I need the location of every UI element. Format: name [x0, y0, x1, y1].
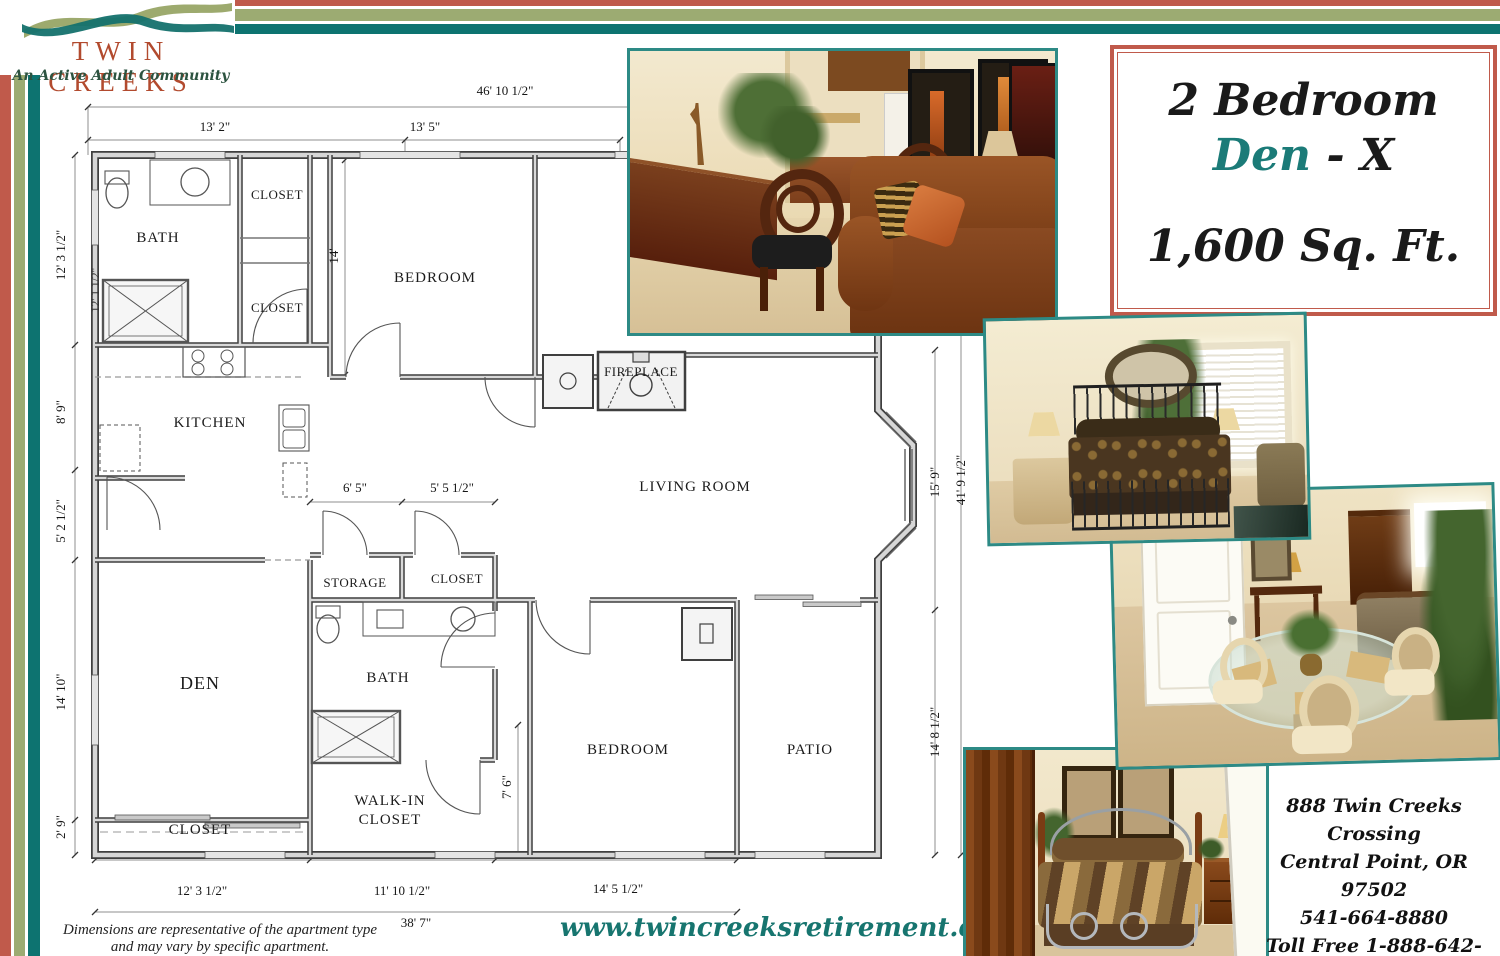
- dim-left-a-inner: 12' 1 1/2": [90, 268, 102, 312]
- dim-right-b: 14' 8 1/2": [927, 707, 942, 757]
- brochure-page: TWIN CREEKS An Active Adult Community: [0, 0, 1500, 956]
- room-label-closet-hall: CLOSET: [431, 571, 483, 586]
- top-stripe-rust: [235, 0, 1500, 6]
- room-label-den: DEN: [180, 673, 220, 693]
- dim-bottom-c: 14' 5 1/2": [593, 881, 643, 896]
- dim-walkin-side: 7' 6": [499, 775, 514, 799]
- dim-bottom-overall: 38' 7": [401, 915, 431, 930]
- dim-left-a: 12' 3 1/2": [55, 230, 68, 280]
- plan-title-line2: Den - X: [1213, 130, 1394, 181]
- plan-title-box: 2 Bedroom Den - X 1,600 Sq. Ft.: [1110, 45, 1497, 316]
- footboard: [1071, 478, 1230, 530]
- bath1-fixtures: [103, 160, 230, 342]
- room-label-kitchen: KITCHEN: [174, 415, 247, 431]
- room-label-closet-mid: CLOSET: [251, 300, 303, 315]
- chair-seat: [1292, 725, 1353, 755]
- room-label-patio: PATIO: [787, 742, 833, 758]
- door-panel: [1155, 536, 1231, 604]
- giraffe-figurine: [690, 103, 704, 165]
- plan-title-den-suffix: - X: [1311, 130, 1394, 181]
- dim-top-overall: 46' 10 1/2": [477, 83, 534, 98]
- dim-left-e: 2' 9": [55, 815, 68, 839]
- chair-legs: [760, 267, 824, 311]
- room-label-walkin-2: CLOSET: [359, 812, 422, 828]
- contact-tollfree: Toll Free 1-888-642-8880: [1248, 932, 1500, 956]
- marble-dresser: [1234, 505, 1312, 543]
- chair-inner-ring: [776, 185, 820, 233]
- contact-address1: 888 Twin Creeks Crossing: [1248, 792, 1500, 848]
- contact-block: 888 Twin Creeks Crossing Central Point, …: [1248, 792, 1500, 956]
- scroll-curl: [1070, 912, 1098, 940]
- dim-top-b: 13' 5": [410, 119, 440, 134]
- dim-top-a: 13' 2": [200, 119, 230, 134]
- cabinets: [828, 51, 910, 91]
- scroll-curl: [1120, 912, 1148, 940]
- room-label-bedroom1: BEDROOM: [394, 270, 476, 286]
- dim-mid-a: 6' 5": [343, 480, 367, 495]
- nightstand-plant: [1196, 836, 1226, 862]
- left-stripe-teal: [28, 75, 40, 956]
- room-label-walkin-1: WALK-IN: [354, 793, 425, 809]
- contact-address2: Central Point, OR 97502: [1248, 848, 1500, 904]
- photo-master-bedroom: [983, 312, 1312, 547]
- dim-mid-b: 5' 5 1/2": [430, 480, 474, 495]
- chair-seat: [1384, 669, 1435, 696]
- accent-chair: [1256, 443, 1305, 508]
- photo-living-room: [627, 48, 1058, 336]
- plan-title-sqft: 1,600 Sq. Ft.: [1147, 221, 1460, 272]
- dim-left-b: 8' 9": [55, 400, 68, 424]
- fireplace: [598, 352, 685, 410]
- room-label-living: LIVING ROOM: [639, 479, 750, 495]
- room-label-fireplace: FIREPLACE: [604, 364, 678, 379]
- dim-right-overall: 41' 9 1/2": [953, 455, 968, 505]
- room-label-storage: STORAGE: [323, 575, 386, 590]
- chair-seat: [1212, 679, 1263, 704]
- room-label-bedroom2: BEDROOM: [587, 742, 669, 758]
- dim-bottom-b: 11' 10 1/2": [374, 883, 430, 898]
- room-label-closet-top: CLOSET: [251, 187, 303, 202]
- top-stripe-teal: [235, 24, 1500, 34]
- nightstand: [1013, 458, 1076, 525]
- iron-bed: [1067, 382, 1232, 533]
- plan-title-line1: 2 Bedroom: [1168, 75, 1438, 126]
- room-label-bath2: BATH: [366, 670, 409, 686]
- dim-bottom-a: 12' 3 1/2": [177, 883, 227, 898]
- dining-chair: [1211, 637, 1265, 710]
- leather-sofa: [850, 156, 1058, 336]
- photo-second-bedroom: [963, 747, 1269, 956]
- dim-left-c: 5' 2 1/2": [55, 499, 68, 543]
- oval-back-chair: [750, 169, 836, 319]
- armoire-door: [966, 750, 1035, 956]
- centerpiece-plant: [1279, 607, 1342, 661]
- bed: [1036, 808, 1204, 950]
- left-stripe-sage: [14, 75, 25, 956]
- dim-bedroom1-side: 14': [326, 248, 341, 263]
- room-label-bath1: BATH: [136, 230, 179, 246]
- contact-phone: 541-664-8880: [1248, 904, 1500, 932]
- plan-title-inner: 2 Bedroom Den - X 1,600 Sq. Ft.: [1117, 52, 1490, 309]
- dining-chair: [1383, 627, 1437, 702]
- centerpiece-vase: [1300, 654, 1323, 677]
- table-lamp: [1028, 412, 1060, 437]
- top-stripe-sage: [235, 9, 1500, 21]
- palm-plant: [760, 106, 830, 171]
- plan-title-den: Den: [1213, 130, 1311, 181]
- chair-seat: [752, 235, 832, 269]
- room-label-closet-den: CLOSET: [169, 822, 232, 838]
- dining-chair: [1288, 675, 1356, 763]
- logo-waves-icon: [22, 2, 234, 38]
- left-stripe-rust: [0, 75, 11, 956]
- dim-left-d: 14' 10": [55, 674, 68, 711]
- dim-right-a: 15' 9": [927, 467, 942, 497]
